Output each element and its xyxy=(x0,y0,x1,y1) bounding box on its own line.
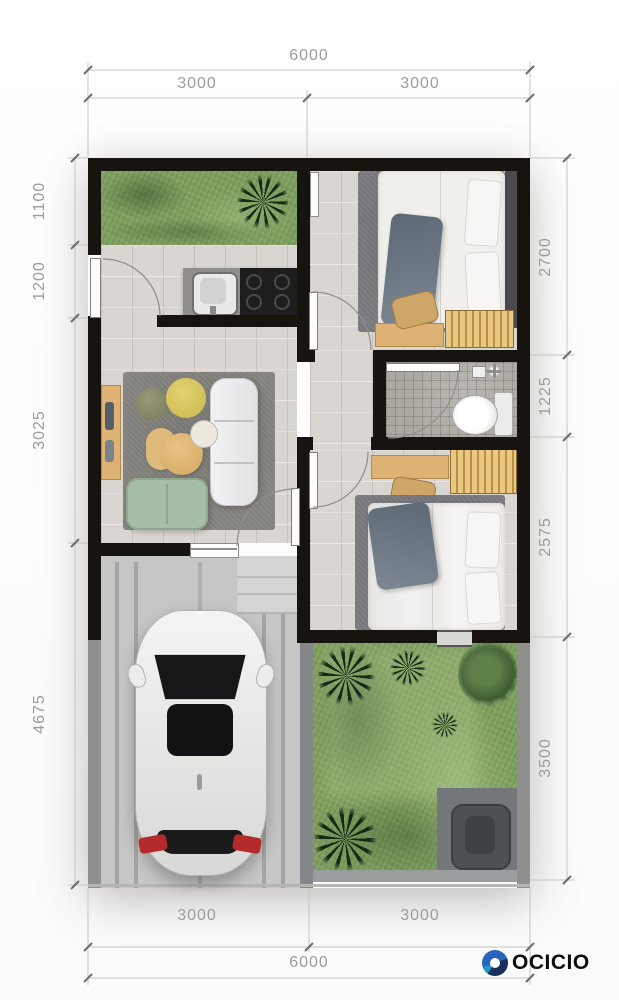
car-rear-window xyxy=(157,830,243,854)
dim-top-total: 6000 xyxy=(289,47,329,65)
bed-2-blanket xyxy=(367,501,440,591)
bedroom-1-window xyxy=(310,172,319,217)
stove-burner xyxy=(274,294,290,310)
water-tank-lid xyxy=(465,816,495,854)
coffee-table-yellow xyxy=(166,378,206,418)
sideboard-decor xyxy=(105,402,114,430)
entry-porch-step xyxy=(237,556,297,614)
wall-right xyxy=(517,171,530,643)
side-door-leaf xyxy=(90,258,101,318)
car-sunroof xyxy=(167,704,233,756)
backyard-small-plant xyxy=(432,712,458,738)
dim-top-left: 3000 xyxy=(177,75,217,93)
backyard-left-border xyxy=(300,643,313,888)
shower-valve xyxy=(472,366,486,378)
stove-burner xyxy=(274,274,290,290)
bed-2-pillow xyxy=(464,571,502,625)
sideboard xyxy=(101,385,121,480)
wall-house-bottom-right xyxy=(472,630,530,643)
sofa-seat-seam xyxy=(214,462,254,464)
dim-right-3500: 3500 xyxy=(537,738,555,778)
bathroom-door-leaf xyxy=(386,363,460,372)
backyard-small-plant xyxy=(390,650,426,686)
porch-step-line xyxy=(237,576,297,578)
backyard-bottom-border xyxy=(313,870,517,882)
wall-living-bottom xyxy=(88,543,190,556)
backyard-palm-plant xyxy=(314,806,376,872)
hallway-floor xyxy=(310,350,373,450)
bedroom-1-door-leaf xyxy=(309,292,318,350)
white-sofa xyxy=(210,378,258,506)
wall-left-upper xyxy=(88,171,101,255)
garden-plant xyxy=(238,173,288,231)
shower-head-icon xyxy=(487,364,501,378)
dim-bottom-left: 3000 xyxy=(177,907,217,925)
window-mullion xyxy=(190,548,237,550)
backyard-sliding-door xyxy=(437,630,472,647)
dim-bottom-total: 6000 xyxy=(289,954,329,972)
living-room-window xyxy=(190,543,239,558)
bed-1-pillow xyxy=(464,251,501,315)
dim-left-4675: 4675 xyxy=(31,694,49,734)
bed-2-pillow xyxy=(465,511,502,569)
bedroom-2-door-leaf xyxy=(309,452,318,509)
brand-logo-icon xyxy=(482,950,508,976)
right-curb xyxy=(517,643,530,888)
wall-kitchen xyxy=(157,315,310,327)
sideboard-decor xyxy=(105,440,114,462)
dim-left-1100: 1100 xyxy=(31,182,49,220)
car-antenna xyxy=(197,774,202,790)
bedroom-2-desk xyxy=(371,455,449,479)
wall-bathroom-top xyxy=(373,350,530,362)
stove-burner xyxy=(246,294,262,310)
stove-burner xyxy=(246,274,262,290)
backyard-palm-plant xyxy=(318,645,374,707)
wall-left-lower xyxy=(88,316,101,640)
dim-left-3025: 3025 xyxy=(31,410,49,450)
dim-right-1225: 1225 xyxy=(537,376,555,416)
brand-logo-text: OCICIO xyxy=(512,951,590,975)
bed-1-headboard xyxy=(505,171,517,328)
coffee-table-small xyxy=(190,420,218,448)
plot-bottom-edge xyxy=(88,884,530,887)
bedroom-1-dresser xyxy=(445,310,514,348)
driveway-stripe xyxy=(115,562,119,888)
dim-bottom-right: 3000 xyxy=(400,907,440,925)
dim-right-2575: 2575 xyxy=(537,517,555,557)
sink-basin xyxy=(200,278,226,304)
dim-left-1200: 1200 xyxy=(31,261,49,301)
dim-right-2700: 2700 xyxy=(537,237,555,277)
backyard-bush xyxy=(458,641,518,707)
bedroom-2-dresser xyxy=(450,448,517,494)
wall-bedroom2-top xyxy=(371,437,530,450)
loveseat-seam xyxy=(166,484,168,524)
coffee-table-olive xyxy=(136,388,168,420)
dim-top-right: 3000 xyxy=(400,75,440,93)
wall-bedroom2-top-left xyxy=(297,437,313,450)
front-door-leaf xyxy=(291,488,300,546)
bed-1-pillow xyxy=(464,179,503,247)
brand-logo: OCICIO xyxy=(482,950,590,976)
porch-step-line xyxy=(237,593,297,595)
sofa-seat-seam xyxy=(214,420,254,422)
wall-bathroom-left xyxy=(373,350,386,450)
left-curb xyxy=(88,640,101,888)
floor-plan-page: 6000 3000 3000 1100 1200 3025 4675 2700 … xyxy=(0,0,619,1000)
toilet-bowl xyxy=(452,395,498,435)
wall-house-bottom-left xyxy=(297,630,437,643)
wall-top xyxy=(88,158,530,171)
car xyxy=(133,608,267,876)
